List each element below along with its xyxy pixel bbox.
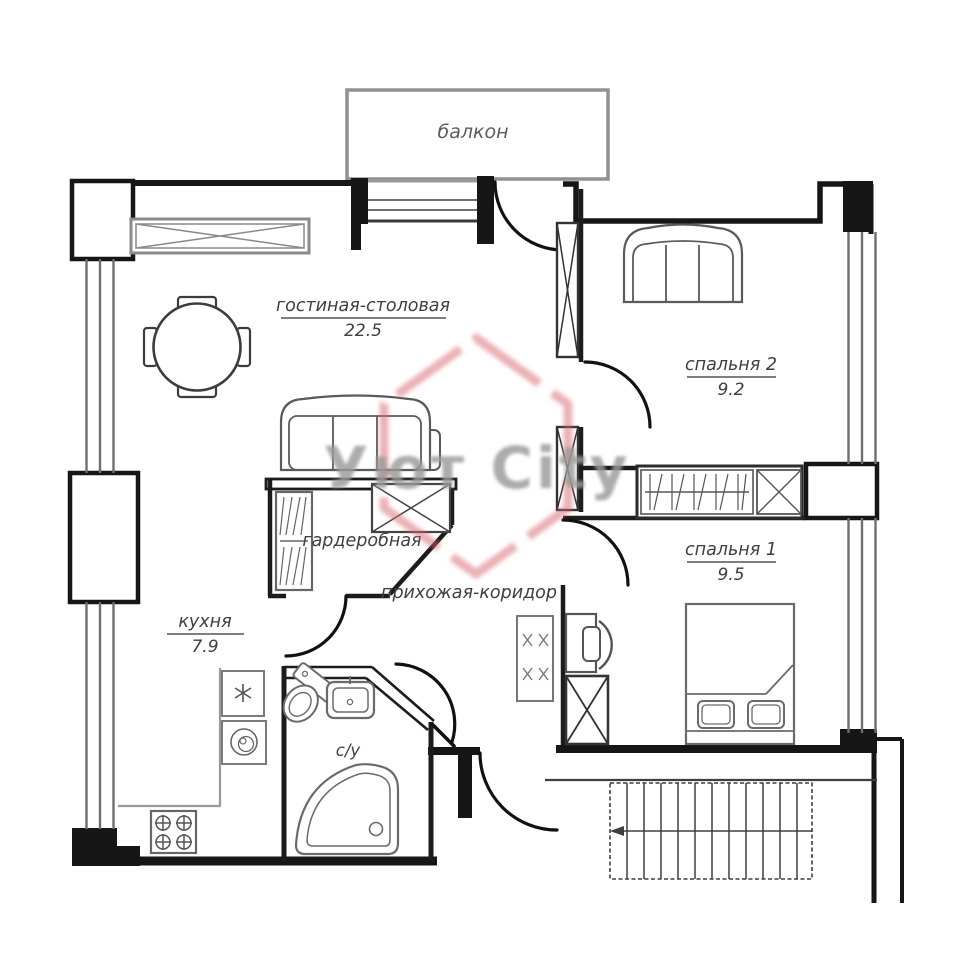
- pier-southeast: [840, 729, 877, 747]
- door-balcony: [495, 182, 563, 250]
- hall-cabinet: [517, 616, 553, 701]
- label-living-room: гостиная-столовая: [276, 296, 450, 316]
- area-bedroom1: 9.5: [717, 565, 744, 585]
- door-wardrobe: [286, 596, 346, 656]
- door-bathroom-leaf: [432, 724, 454, 746]
- door-entrance: [480, 753, 557, 830]
- bed-bedroom1: [686, 604, 794, 744]
- wall-bath-diag-inner: [366, 678, 428, 730]
- staircase: [545, 780, 877, 879]
- pier-west-middle: [70, 473, 138, 602]
- label-kitchen: кухня: [178, 612, 231, 632]
- watermark-text: Уют City: [324, 434, 631, 502]
- sofa-bedroom2: [624, 225, 742, 303]
- chair-seat: [583, 627, 600, 661]
- stove: [151, 811, 196, 853]
- outer-walls: [70, 176, 902, 903]
- wall-entrance-step: [458, 755, 472, 818]
- bathroom-sink: [327, 676, 374, 718]
- fridge: [222, 671, 264, 716]
- window-right-lower: [849, 518, 876, 733]
- window-left-upper: [87, 259, 114, 473]
- balcony-label: балкон: [437, 121, 508, 143]
- cabinet-bedroom1: [566, 676, 608, 744]
- pier-northwest: [72, 181, 133, 259]
- floor-plan-canvas: балкон: [0, 0, 960, 960]
- wall-bath-diag-outer: [372, 667, 434, 721]
- label-bathroom: с/у: [336, 741, 361, 760]
- shower-tray: [296, 764, 398, 854]
- label-hallway: прихожая-коридор: [381, 583, 557, 603]
- door-bedroom1: [563, 520, 628, 585]
- label-bedroom2: спальня 2: [685, 355, 777, 375]
- wall-top-east: [563, 184, 871, 221]
- built-in-wardrobe: [637, 466, 802, 518]
- table-round: [154, 304, 241, 391]
- window-cap-right: [477, 176, 494, 244]
- area-living-room: 22.5: [344, 321, 382, 341]
- pier-east-middle: [806, 464, 877, 518]
- window-cap-left: [351, 178, 368, 250]
- area-bedroom2: 9.2: [717, 380, 744, 400]
- kitchen-counter: [118, 668, 220, 806]
- floor-plan-page: балкон: [0, 0, 960, 960]
- dining-table: [144, 297, 250, 397]
- stair-arrow-icon: [610, 826, 624, 836]
- window-right-upper: [849, 232, 876, 464]
- door-bedroom2: [585, 362, 650, 427]
- desk-bedroom1: [566, 614, 612, 672]
- sink-drain: [347, 699, 352, 704]
- vent-shaft-upper: [557, 223, 578, 357]
- closet-top-left: [131, 219, 309, 253]
- window-left-lower: [87, 602, 114, 829]
- area-kitchen: 7.9: [191, 637, 218, 657]
- balcony: балкон: [347, 90, 608, 179]
- window-balcony: [368, 181, 477, 221]
- label-bedroom1: спальня 1: [685, 540, 777, 560]
- label-wardrobe: гардеробная: [302, 531, 421, 551]
- washing-machine: [222, 721, 266, 764]
- door-bathroom: [396, 664, 455, 742]
